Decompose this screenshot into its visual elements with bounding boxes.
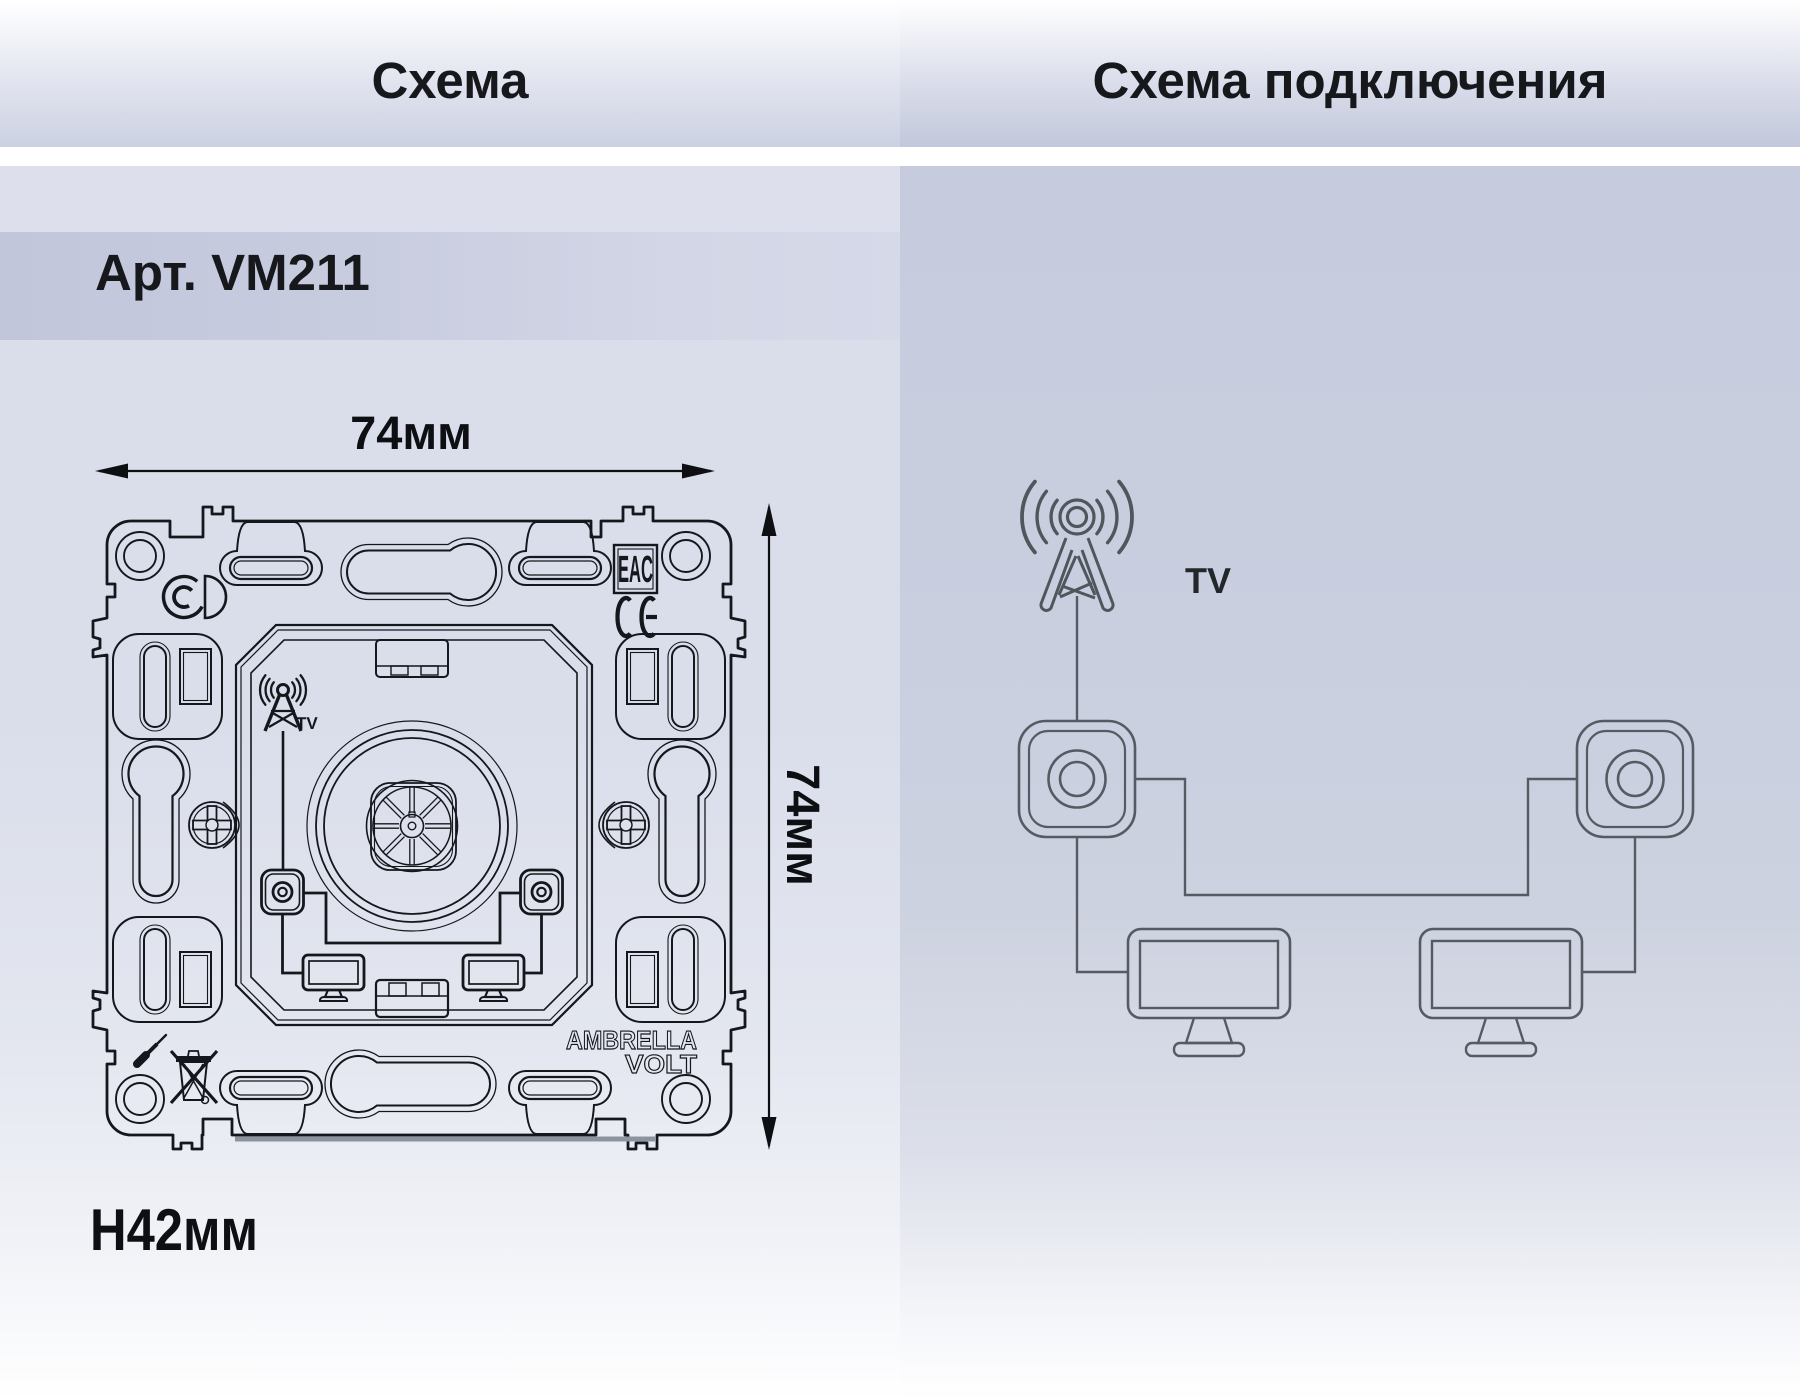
svg-text:TV: TV [1185,560,1231,601]
svg-text:TV: TV [296,714,318,733]
svg-text:74мм: 74мм [777,764,830,886]
svg-text:VOLT: VOLT [625,1049,697,1079]
svg-text:EAC: EAC [618,549,653,591]
svg-text:Н42мм: Н42мм [90,1197,258,1263]
svg-text:74мм: 74мм [350,406,472,459]
